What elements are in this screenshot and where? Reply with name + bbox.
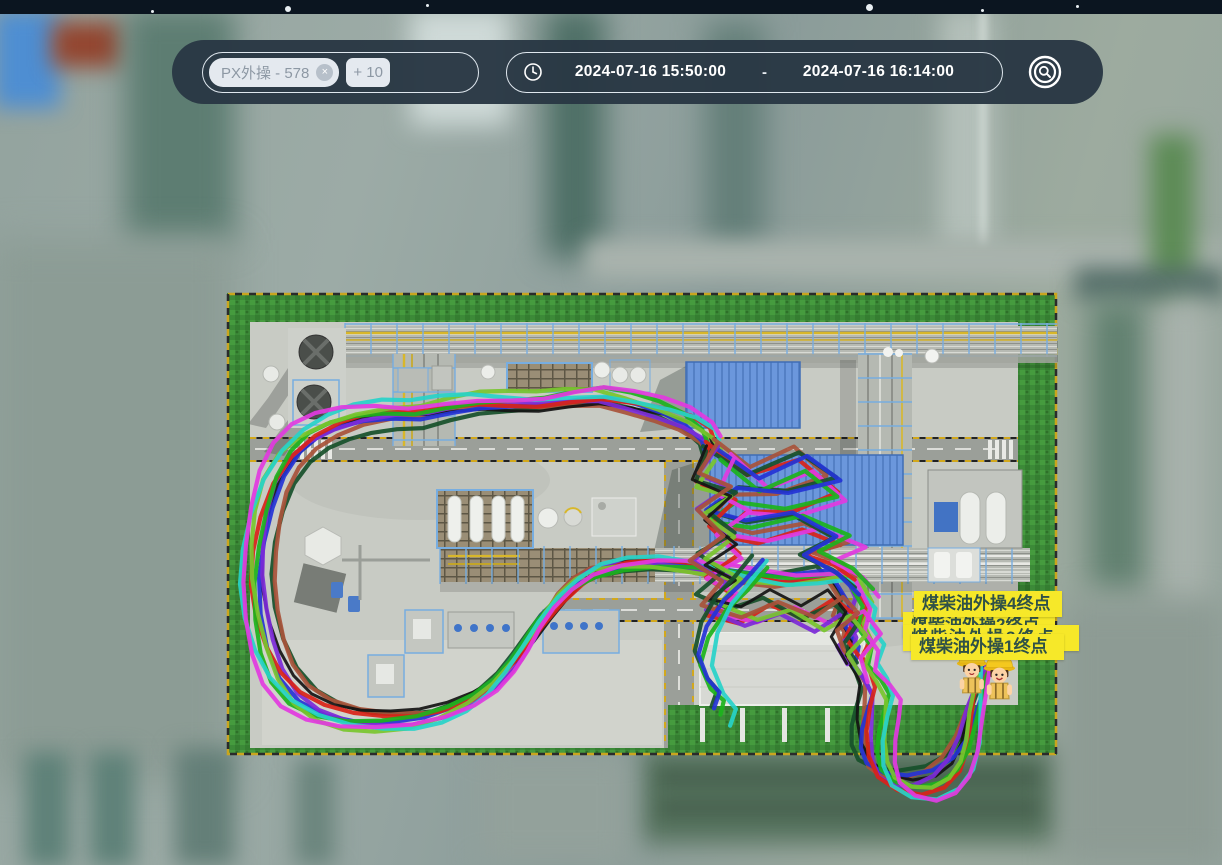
toolbar: PX外操 - 578 × + 10 2024-07-16 15:50:00 - … xyxy=(172,40,1103,104)
person-tag-label: PX外操 - 578 xyxy=(221,62,309,83)
time-separator: - xyxy=(758,64,771,81)
status-strip xyxy=(0,0,1222,14)
endpoint-label[interactable]: 煤柴油外操4终点 xyxy=(914,591,1062,617)
endpoint-label[interactable]: 煤柴油外操1终点 xyxy=(911,634,1064,660)
more-tags-badge[interactable]: + 10 xyxy=(346,58,390,87)
time-range-picker[interactable]: 2024-07-16 15:50:00 - 2024-07-16 16:14:0… xyxy=(506,52,1003,93)
end-time[interactable]: 2024-07-16 16:14:00 xyxy=(771,63,986,81)
app-window: 煤柴油外操2终点 煤柴油外操3终点 煤柴油外操1终点 煤柴油外操4终点 PX外操… xyxy=(0,0,1222,865)
person-filter-input[interactable]: PX外操 - 578 × + 10 xyxy=(202,52,479,93)
locate-search-button[interactable] xyxy=(1028,55,1062,89)
tag-close-icon[interactable]: × xyxy=(316,64,333,81)
clock-icon xyxy=(523,62,543,82)
person-tag[interactable]: PX外操 - 578 × xyxy=(209,58,339,87)
start-time[interactable]: 2024-07-16 15:50:00 xyxy=(543,63,758,81)
